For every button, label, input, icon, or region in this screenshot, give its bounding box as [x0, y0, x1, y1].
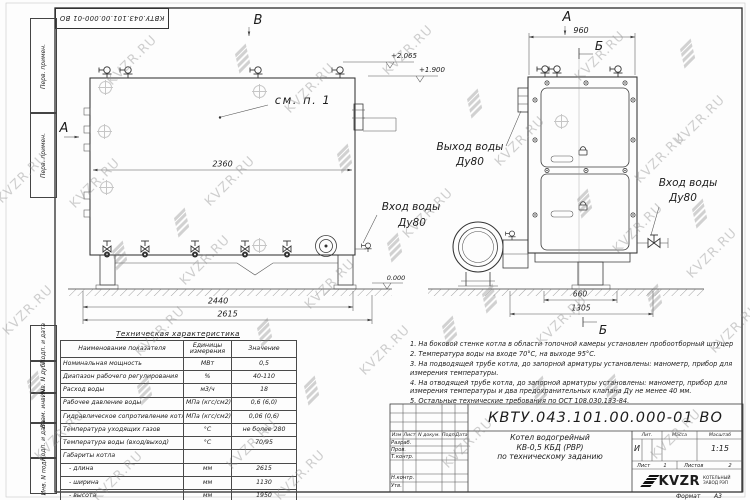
cell: °С	[184, 437, 232, 450]
row-razrab: Разраб.	[391, 440, 417, 446]
product-name: Котел водогрейный КВ-0,5 КБД (РВР) по те…	[470, 433, 630, 462]
cell: Габариты котла	[61, 450, 184, 463]
table-row: - длинамм2615	[61, 463, 297, 476]
doc-number: КВТУ.043.101.00.000-01 ВО	[469, 405, 742, 430]
technical-notes: 1. На боковой стенке котла в области топ…	[410, 340, 743, 407]
dim-660: 660	[573, 290, 588, 299]
kvzr-logo-sub2: ЗАВОД РЭП	[703, 481, 730, 486]
elevation-zero: 0.000	[387, 274, 406, 282]
cell: 40-110	[232, 371, 297, 384]
kvzr-logo-subtext: КОТЕЛЬНЫЙ ЗАВОД РЭП	[703, 476, 730, 486]
col-header: Наименование показателя	[61, 341, 184, 358]
cell	[184, 450, 232, 463]
cell: - ширина	[61, 476, 184, 489]
dim-2360: 2360	[212, 160, 232, 169]
scale-value: 1:15	[697, 444, 743, 453]
table-row: - высотамм1950	[61, 489, 297, 500]
margin-box-perv-primen-1: Перв. примен.	[30, 18, 57, 114]
product-name-line2: КВ-0,5 КБД (РВР)	[470, 443, 630, 453]
view-label-a-top: А	[562, 10, 572, 25]
elevation-1900: +1.900	[419, 66, 445, 74]
cell: мм	[184, 463, 232, 476]
margin-box-podp-data-1: Подп. и дата	[30, 325, 57, 362]
dim-2440: 2440	[208, 297, 228, 306]
blower-fan	[453, 222, 528, 286]
cell: 1130	[232, 476, 297, 489]
side-view	[64, 27, 438, 324]
product-name-line1: Котел водогрейный	[470, 433, 630, 443]
water-inlet-right-dn: Ду80	[668, 192, 697, 204]
product-name-line3: по техническому заданию	[470, 452, 630, 462]
table-row: Температура воды (вход/выход)°С70/95	[61, 437, 297, 450]
th-list: Лист	[403, 433, 416, 438]
cell: Температура воды (вход/выход)	[61, 437, 184, 450]
cell: - длина	[61, 463, 184, 476]
dim-2615: 2615	[217, 310, 237, 319]
table-row: Габариты котла	[61, 450, 297, 463]
section-label-b-bottom: Б	[599, 323, 607, 337]
view-label-v: В	[254, 13, 263, 28]
water-inlet-right-label: Вход воды	[659, 177, 718, 189]
col-header: Значение	[232, 341, 297, 358]
section-label-b-top: Б	[595, 39, 603, 53]
spec-table: Наименование показателяЕдиницы измерения…	[60, 340, 297, 500]
cell: 0,06 (0,6)	[232, 410, 297, 423]
table-row: Диапазон рабочего регулирования%40-110	[61, 371, 297, 384]
th-masshtab: Масштаб	[697, 433, 743, 438]
th-izm: Изм	[390, 433, 403, 438]
sheet-value: 1	[658, 463, 672, 469]
margin-label: Инв. N подл.	[40, 456, 47, 496]
cell: 18	[232, 384, 297, 397]
th-ndokum: N докум.	[416, 433, 442, 438]
spec-table-title: Техническая характеристика	[60, 329, 296, 338]
margin-label: Перв. примен.	[40, 43, 47, 88]
row-prov: Пров.	[391, 447, 417, 453]
th-massa: Масса	[662, 433, 697, 438]
table-row: Температура уходящих газов°Сне более 280	[61, 423, 297, 436]
row-utv: Утв.	[391, 483, 417, 489]
cell: - высота	[61, 489, 184, 500]
kvzr-logo: KVZR КОТЕЛЬНЫЙ ЗАВОД РЭП	[635, 471, 741, 491]
table-row: - ширинамм1130	[61, 476, 297, 489]
margin-box-inv-podl: Инв. N подл.	[30, 457, 57, 494]
margin-box-podp-data-2: Подп. и дата	[30, 422, 57, 459]
cell: Диапазон рабочего регулирования	[61, 371, 184, 384]
cell: 2615	[232, 463, 297, 476]
note-2: 2. Температура воды на входе 70°С, на вы…	[410, 350, 743, 359]
see-note-callout: см. п. 1	[275, 93, 331, 107]
format-label: Формат	[676, 493, 710, 500]
note-4: 4. На отводящей трубе котла, до запорной…	[410, 379, 743, 397]
table-row: Расход водым3/ч18	[61, 384, 297, 397]
dim-960: 960	[573, 26, 588, 35]
sheets-value: 2	[722, 463, 738, 469]
cell: Температура уходящих газов	[61, 423, 184, 436]
lit-value: И	[632, 444, 642, 453]
cell: Номинальная мощность	[61, 358, 184, 371]
kvzr-logo-text: KVZR	[658, 474, 700, 489]
cell: 1950	[232, 489, 297, 500]
cell: не более 280	[232, 423, 297, 436]
table-row: Номинальная мощностьМВт0,5	[61, 358, 297, 371]
cell: %	[184, 371, 232, 384]
water-inlet-mid-label: Вход воды	[382, 201, 441, 213]
table-row: Рабочее давление водыМПа (кгс/см2)0,6 (6…	[61, 397, 297, 410]
cell: °С	[184, 423, 232, 436]
elevation-2065: +2.065	[391, 52, 417, 60]
cell: 0,5	[232, 358, 297, 371]
row-tkontr: Т.контр.	[391, 454, 417, 460]
cell: Рабочее давление воды	[61, 397, 184, 410]
view-label-a-left: А	[59, 121, 69, 136]
th-data: Дата	[455, 433, 468, 438]
sheet-label: Лист	[637, 463, 659, 469]
note-3: 3. На подводящей трубе котла, до запорно…	[410, 360, 743, 378]
format-value: А3	[714, 493, 732, 500]
cell	[232, 450, 297, 463]
front-view	[363, 26, 704, 327]
th-lit: Лит.	[632, 433, 662, 438]
cell: МВт	[184, 358, 232, 371]
cell: МПа (кгс/см2)	[184, 397, 232, 410]
cell: м3/ч	[184, 384, 232, 397]
water-outlet-dn: Ду80	[455, 156, 484, 168]
cell: мм	[184, 489, 232, 500]
drawing-sheet: 2360 2440 2615 960 660 1305 см. п. 1 А В…	[0, 0, 750, 500]
water-outlet-label: Выход воды	[437, 141, 504, 153]
row-nkontr: Н.контр.	[391, 475, 417, 481]
water-inlet-mid-dn: Ду80	[397, 217, 426, 229]
margin-label: Перв. примен.	[40, 132, 47, 177]
col-header: Единицы измерения	[184, 341, 232, 358]
dim-1305: 1305	[571, 304, 590, 313]
cell: Расход воды	[61, 384, 184, 397]
sheets-label: Листов	[684, 463, 718, 469]
doc-number-stamp-rotated: КВТУ.043.101.00.000-01 ВО	[55, 8, 169, 29]
cell: МПа (кгс/см2)	[184, 410, 232, 423]
cell: 0,6 (6,0)	[232, 397, 297, 410]
th-podp: Подп.	[442, 433, 455, 438]
note-1: 1. На боковой стенке котла в области топ…	[410, 340, 743, 349]
cell: мм	[184, 476, 232, 489]
table-row: Гидравлическое сопротивление котлаМПа (к…	[61, 410, 297, 423]
cell: Гидравлическое сопротивление котла	[61, 410, 184, 423]
spec-table-block: Техническая характеристика Наименование …	[60, 329, 296, 500]
margin-box-perv-primen-2: Перв. примен.	[30, 112, 57, 198]
cell: 70/95	[232, 437, 297, 450]
